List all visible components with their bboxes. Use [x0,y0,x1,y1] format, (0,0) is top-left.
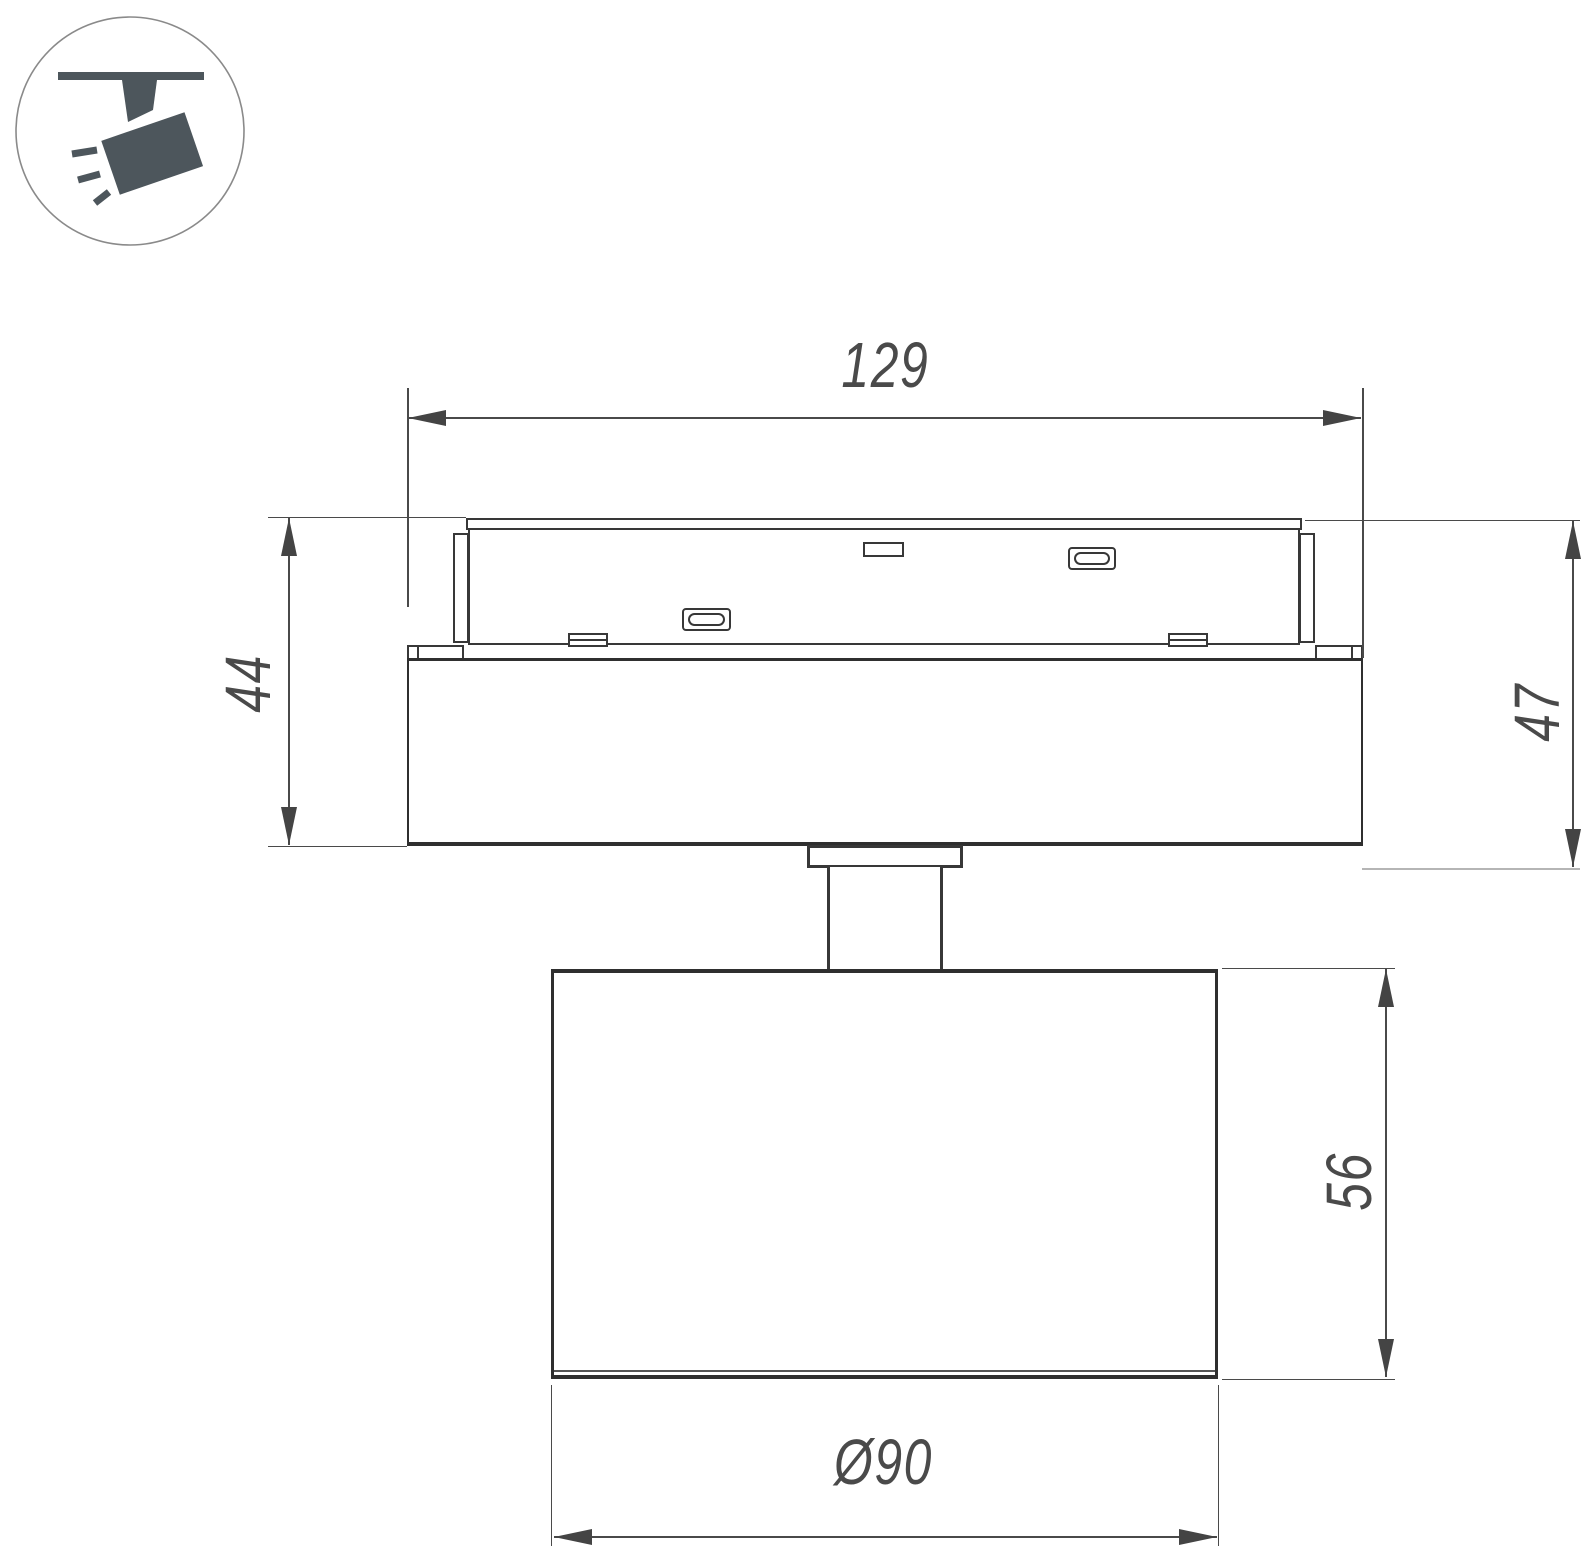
technical-drawing: 129 44 47 56 Ø90 [0,0,1587,1561]
dim-body-height-arrow-bottom [1378,1339,1394,1377]
dim-width-ext-right [1362,388,1364,658]
dim-body-height-arrow-top [1378,969,1394,1007]
dim-right-height-arrow-top [1565,521,1581,559]
dim-width-line [408,417,1361,419]
dim-diameter-ext-left [551,1385,552,1546]
icon-ceiling-track [58,72,204,80]
dim-left-height-arrow-bottom [281,807,297,845]
dim-body-height-ext-bottom [1222,1379,1395,1380]
adapter-grommet-top-right [1068,547,1116,570]
track-spotlight-icon [8,8,254,254]
dim-diameter-ext-right [1218,1385,1219,1546]
adapter-slot-top-center [863,542,904,557]
dim-right-height-label: 47 [1497,602,1577,822]
dim-width-label: 129 [775,325,995,405]
lamp-cylinder [551,969,1218,1379]
dim-width-arrow-left [408,410,446,426]
dim-left-height-ext-bottom [268,846,407,847]
dim-left-height-line [288,518,290,845]
dim-body-height-label: 56 [1309,1071,1389,1291]
adapter-left-tab [453,533,469,643]
dim-right-height-ext-top [1305,520,1580,521]
dim-right-height-arrow-bottom [1565,829,1581,867]
adapter-right-tab [1299,533,1315,643]
adapter-contact-bottom-right [1168,633,1208,647]
dim-width-arrow-right [1323,410,1361,426]
dim-diameter-arrow-right [1179,1529,1217,1545]
dim-right-height-line [1572,521,1574,867]
stem-flange [807,845,963,868]
lamp-cylinder-bottom-inner-line [554,1370,1215,1372]
dim-width-ext-left [407,388,409,607]
dim-diameter-label: Ø90 [773,1422,993,1502]
dim-diameter-arrow-left [554,1529,592,1545]
dim-left-height-label: 44 [208,573,288,793]
housing-body [407,658,1363,846]
dim-body-height-ext-top [1222,968,1395,969]
dim-body-height-line [1385,969,1387,1377]
dim-left-height-arrow-top [281,518,297,556]
adapter-grommet-mid-left [682,608,731,631]
dim-diameter-line [554,1536,1217,1538]
dim-left-height-ext-top [268,517,466,518]
stem [827,867,943,969]
adapter-contact-bottom-left [568,633,608,647]
dim-right-height-ext-bottom [1362,868,1580,870]
